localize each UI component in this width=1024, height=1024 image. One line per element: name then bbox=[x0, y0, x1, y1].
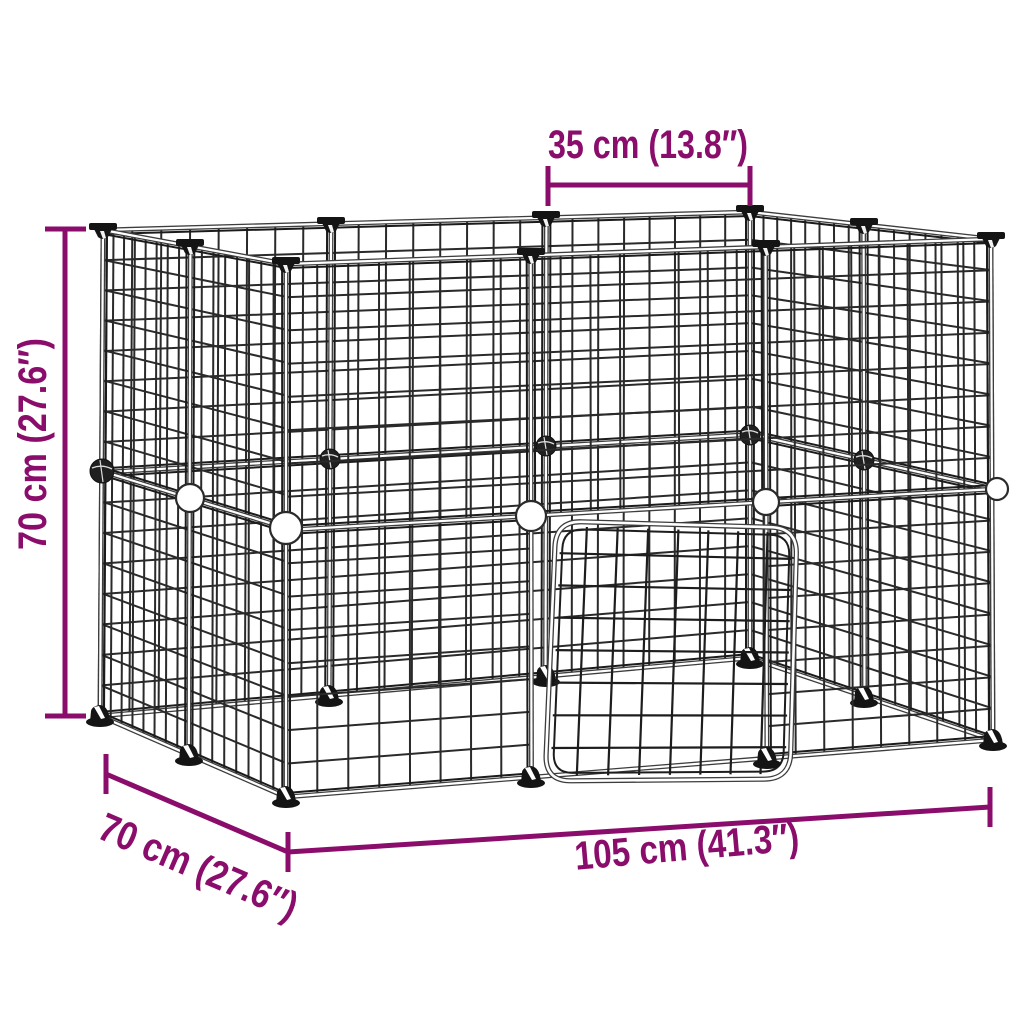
svg-text:70 cm (27.6″): 70 cm (27.6″) bbox=[11, 338, 55, 550]
svg-text:35 cm (13.8″): 35 cm (13.8″) bbox=[548, 123, 748, 167]
